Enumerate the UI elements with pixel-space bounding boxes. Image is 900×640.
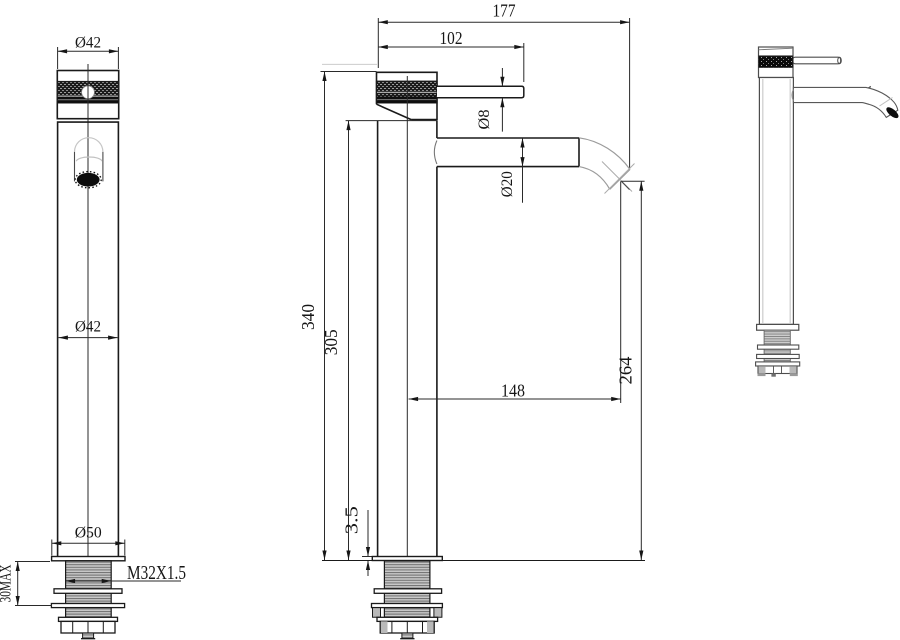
- svg-text:340: 340: [298, 304, 318, 330]
- svg-text:Ø50: Ø50: [75, 525, 102, 542]
- svg-text:305: 305: [321, 329, 341, 355]
- svg-text:264: 264: [616, 357, 636, 385]
- svg-text:30MAX: 30MAX: [0, 564, 15, 602]
- svg-text:3.5: 3.5: [342, 506, 362, 534]
- svg-text:148: 148: [501, 381, 525, 401]
- svg-text:Ø42: Ø42: [75, 319, 101, 336]
- svg-text:102: 102: [440, 28, 463, 48]
- svg-text:Ø20: Ø20: [499, 171, 516, 197]
- svg-text:Ø42: Ø42: [75, 35, 101, 52]
- svg-text:Ø8: Ø8: [476, 110, 493, 130]
- svg-text:177: 177: [493, 1, 516, 21]
